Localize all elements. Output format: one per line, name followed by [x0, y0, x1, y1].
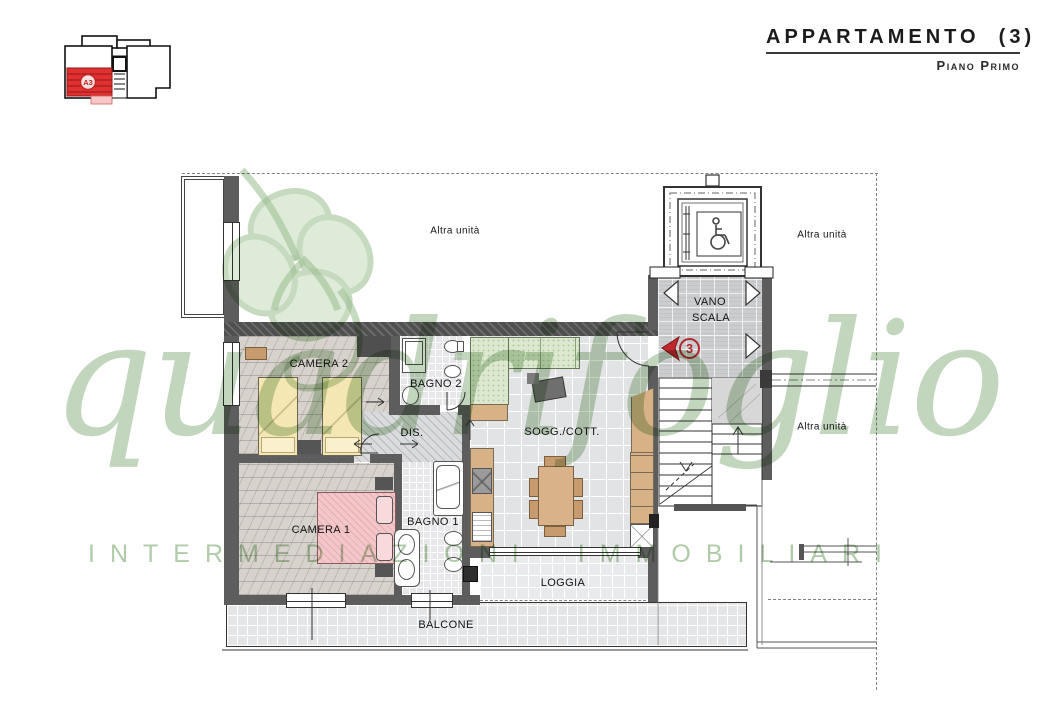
dis-arrow-left	[354, 440, 372, 448]
plan-linework	[0, 0, 1051, 724]
corridor-wall-nub	[760, 370, 772, 388]
floor-plan-page: APPARTAMENTO (3) Piano Primo A3	[0, 0, 1051, 724]
staircase	[659, 378, 762, 511]
pillar-block	[649, 514, 659, 528]
camera2-label: CAMERA 2	[290, 358, 349, 370]
unit-entry-arrow	[662, 337, 679, 360]
neighbor-label-bottom-right: Altra unità	[797, 422, 846, 433]
bagno2-label: BAGNO 2	[410, 378, 462, 390]
sogg-arrow-up	[466, 420, 474, 440]
neighbor-label-right: Altra unità	[797, 230, 846, 241]
elevator	[664, 175, 761, 276]
unit-number-badge: 3	[679, 338, 700, 359]
loggia-label: LOGGIA	[541, 577, 586, 589]
bagno1-label: BAGNO 1	[407, 516, 459, 528]
shaft-vent	[706, 175, 719, 186]
neighbor-bottom-right-lines	[740, 505, 877, 648]
vano-arrow-right-mid	[746, 334, 760, 358]
vano-top-wall-right	[745, 267, 773, 278]
vano-arrow-left	[664, 281, 678, 305]
dis-arrow-right-2	[400, 440, 418, 448]
soggiorno-label: SOGG./COTT.	[524, 426, 599, 438]
entrance-door-arc	[617, 332, 649, 366]
floor-plan: CAMERA 2 BAGNO 2 DIS. CAMERA 1 BAGNO 1 S…	[0, 0, 1051, 724]
vano-arrow-right-top	[746, 281, 760, 305]
dis-label: DIS.	[401, 427, 424, 439]
vano-top-wall-left	[650, 267, 680, 278]
vano-scala-label-1: VANO	[694, 296, 726, 308]
balcone-label: BALCONE	[418, 619, 473, 631]
camera1-label: CAMERA 1	[292, 524, 351, 536]
vano-scala-label-2: SCALA	[692, 312, 730, 324]
bagno2-door-arc	[447, 392, 465, 410]
neighbor-label-top: Altra unità	[430, 226, 479, 237]
dis-arrow-right-1	[366, 398, 384, 406]
neighbor-corridor-lines	[772, 374, 876, 386]
